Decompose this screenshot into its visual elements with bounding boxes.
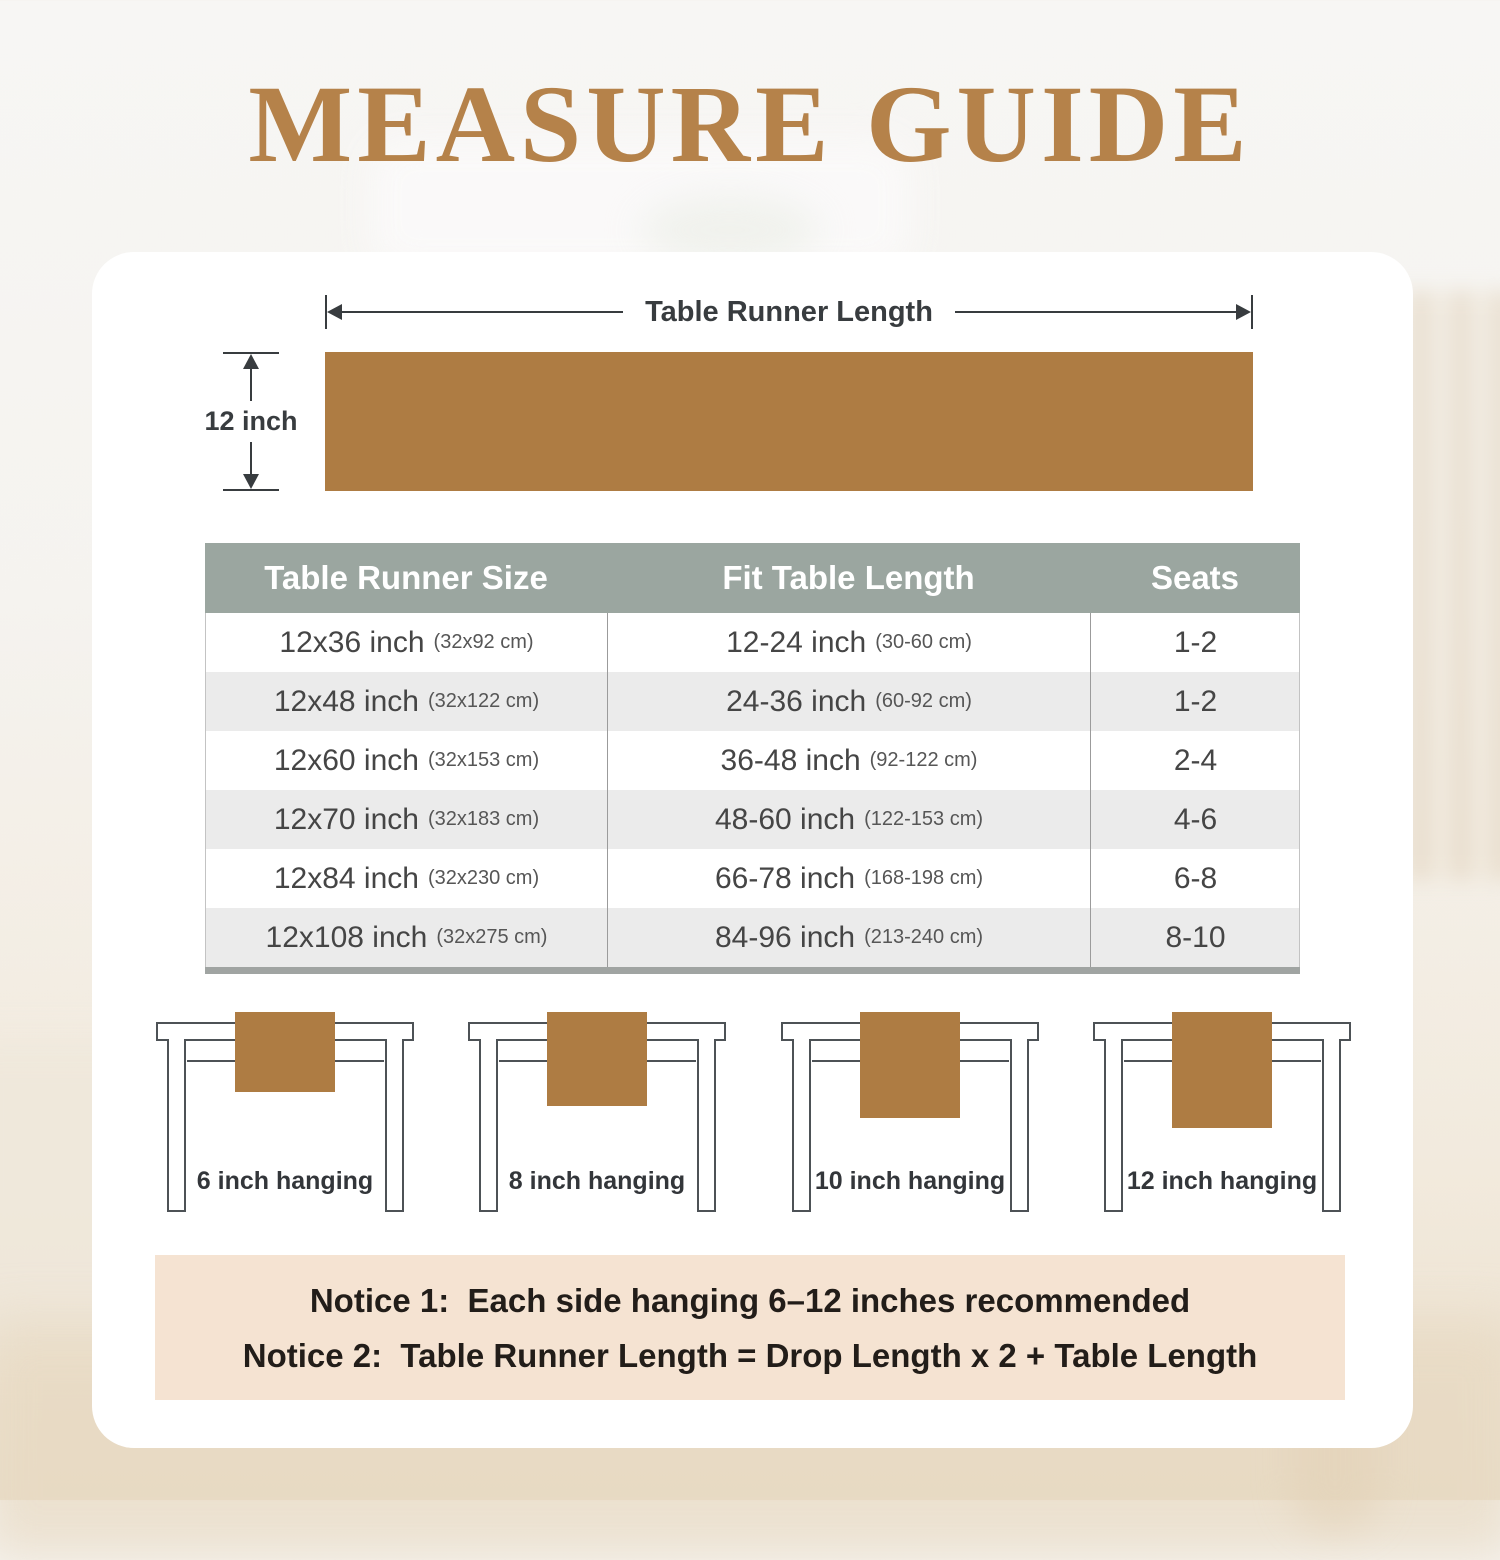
size-cm-value: (32x122 cm) xyxy=(428,690,539,713)
figure-runner xyxy=(547,1012,647,1106)
table-row: 12x108 inch(32x275 cm) 84-96 inch(213-24… xyxy=(206,908,1299,967)
runner-width-label: 12 inch xyxy=(204,401,297,442)
table-row: 12x48 inch(32x122 cm) 24-36 inch(60-92 c… xyxy=(206,672,1299,731)
arrow-down-icon xyxy=(243,474,259,489)
table-bottom-border xyxy=(205,967,1300,974)
header-runner-size: Table Runner Size xyxy=(205,543,607,613)
runner-swatch xyxy=(325,352,1253,491)
size-cm-value: (32x183 cm) xyxy=(428,808,539,831)
dimension-endcap-icon xyxy=(223,489,279,491)
seats-cell: 6-8 xyxy=(1090,849,1300,908)
header-fit-length: Fit Table Length xyxy=(607,543,1090,613)
fit-cm-value: (213-240 cm) xyxy=(864,926,983,949)
seats-cell: 2-4 xyxy=(1090,731,1300,790)
fit-cell: 12-24 inch(30-60 cm) xyxy=(607,613,1090,672)
dimension-line xyxy=(250,442,252,474)
notice-box: Notice 1: Each side hanging 6–12 inches … xyxy=(155,1255,1345,1400)
size-cm-value: (32x92 cm) xyxy=(434,631,534,654)
fit-cm-value: (30-60 cm) xyxy=(875,631,972,654)
dimension-endcap-icon xyxy=(1251,295,1253,329)
hanging-figure: 6 inch hanging xyxy=(148,1012,422,1240)
table-row: 12x60 inch(32x153 cm) 36-48 inch(92-122 … xyxy=(206,731,1299,790)
dimension-line xyxy=(955,311,1236,313)
size-cm-value: (32x153 cm) xyxy=(428,749,539,772)
hanging-label: 8 inch hanging xyxy=(460,1167,734,1196)
fit-cell: 24-36 inch(60-92 cm) xyxy=(607,672,1090,731)
fit-value: 24-36 inch xyxy=(726,685,866,719)
fit-cell: 66-78 inch(168-198 cm) xyxy=(607,849,1090,908)
arrow-right-icon xyxy=(1236,304,1251,320)
seats-value: 1-2 xyxy=(1174,626,1217,660)
table-row: 12x84 inch(32x230 cm) 66-78 inch(168-198… xyxy=(206,849,1299,908)
hanging-figure: 10 inch hanging xyxy=(773,1012,1047,1240)
arrow-left-icon xyxy=(327,304,342,320)
runner-length-dimension: Table Runner Length xyxy=(325,294,1253,330)
header-seats: Seats xyxy=(1090,543,1300,613)
runner-length-label: Table Runner Length xyxy=(623,296,955,329)
hanging-figure: 12 inch hanging xyxy=(1085,1012,1359,1240)
dimension-line xyxy=(250,369,252,401)
size-cm-value: (32x275 cm) xyxy=(436,926,547,949)
figure-runner xyxy=(235,1012,335,1092)
figure-runner xyxy=(860,1012,960,1118)
size-value: 12x70 inch xyxy=(274,803,419,837)
fit-cm-value: (92-122 cm) xyxy=(870,749,978,772)
fit-cm-value: (122-153 cm) xyxy=(864,808,983,831)
fit-value: 84-96 inch xyxy=(715,921,855,955)
measure-guide-card: Table Runner Length 12 inch Table Runner… xyxy=(92,252,1413,1448)
size-cell: 12x108 inch(32x275 cm) xyxy=(206,908,607,967)
hanging-label: 12 inch hanging xyxy=(1085,1167,1359,1196)
seats-value: 6-8 xyxy=(1174,862,1217,896)
seats-value: 1-2 xyxy=(1174,685,1217,719)
seats-cell: 8-10 xyxy=(1090,908,1300,967)
dimension-line xyxy=(342,311,623,313)
size-value: 12x108 inch xyxy=(266,921,428,955)
size-cell: 12x70 inch(32x183 cm) xyxy=(206,790,607,849)
table-row: 12x36 inch(32x92 cm) 12-24 inch(30-60 cm… xyxy=(206,613,1299,672)
page-title: MEASURE GUIDE xyxy=(0,62,1500,186)
seats-value: 4-6 xyxy=(1174,803,1217,837)
fit-value: 36-48 inch xyxy=(721,744,861,778)
fit-cell: 48-60 inch(122-153 cm) xyxy=(607,790,1090,849)
table-header-row: Table Runner Size Fit Table Length Seats xyxy=(205,543,1300,613)
size-cell: 12x48 inch(32x122 cm) xyxy=(206,672,607,731)
size-value: 12x48 inch xyxy=(274,685,419,719)
hanging-figure: 8 inch hanging xyxy=(460,1012,734,1240)
figure-runner xyxy=(1172,1012,1272,1128)
fit-cell: 36-48 inch(92-122 cm) xyxy=(607,731,1090,790)
notice-line-1: Notice 1: Each side hanging 6–12 inches … xyxy=(310,1284,1190,1317)
size-value: 12x60 inch xyxy=(274,744,419,778)
fit-value: 12-24 inch xyxy=(726,626,866,660)
page-background: { "title": "MEASURE GUIDE", "diagram": {… xyxy=(0,0,1500,1500)
size-value: 12x84 inch xyxy=(274,862,419,896)
size-cell: 12x84 inch(32x230 cm) xyxy=(206,849,607,908)
hanging-label: 6 inch hanging xyxy=(148,1167,422,1196)
seats-value: 8-10 xyxy=(1165,921,1225,955)
runner-width-dimension: 12 inch xyxy=(204,352,298,491)
fit-cell: 84-96 inch(213-240 cm) xyxy=(607,908,1090,967)
fit-value: 66-78 inch xyxy=(715,862,855,896)
fit-cm-value: (168-198 cm) xyxy=(864,867,983,890)
fit-cm-value: (60-92 cm) xyxy=(875,690,972,713)
seats-cell: 1-2 xyxy=(1090,613,1300,672)
seats-value: 2-4 xyxy=(1174,744,1217,778)
size-value: 12x36 inch xyxy=(279,626,424,660)
size-cell: 12x36 inch(32x92 cm) xyxy=(206,613,607,672)
table-body: 12x36 inch(32x92 cm) 12-24 inch(30-60 cm… xyxy=(205,613,1300,967)
notice-line-2: Notice 2: Table Runner Length = Drop Len… xyxy=(243,1339,1258,1372)
size-cell: 12x60 inch(32x153 cm) xyxy=(206,731,607,790)
seats-cell: 4-6 xyxy=(1090,790,1300,849)
size-table: Table Runner Size Fit Table Length Seats… xyxy=(205,543,1300,974)
seats-cell: 1-2 xyxy=(1090,672,1300,731)
fit-value: 48-60 inch xyxy=(715,803,855,837)
arrow-up-icon xyxy=(243,354,259,369)
size-cm-value: (32x230 cm) xyxy=(428,867,539,890)
table-row: 12x70 inch(32x183 cm) 48-60 inch(122-153… xyxy=(206,790,1299,849)
hanging-label: 10 inch hanging xyxy=(773,1167,1047,1196)
